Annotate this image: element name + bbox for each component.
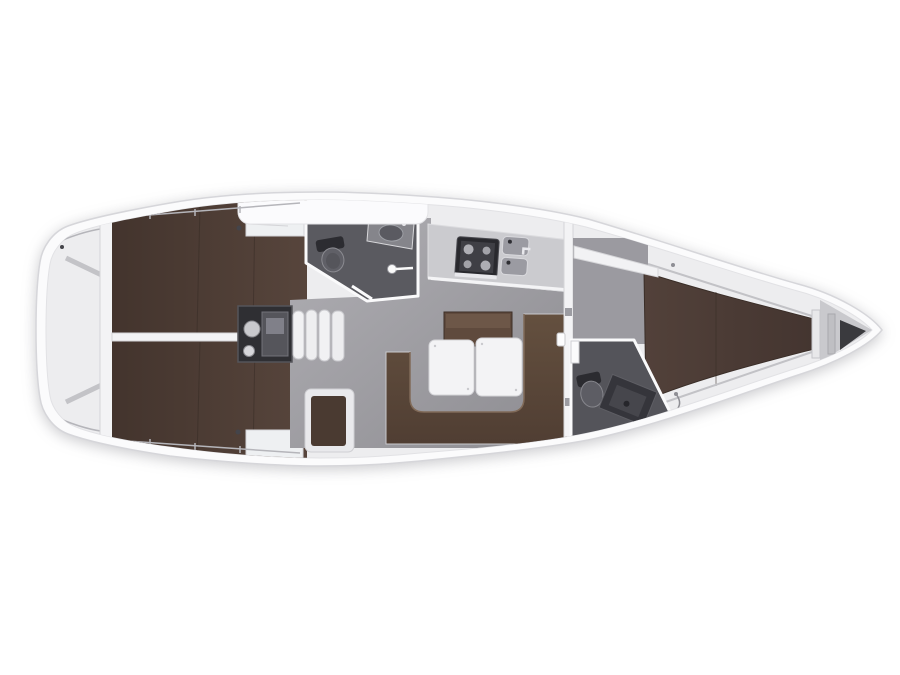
- forward-head-door: [571, 341, 579, 363]
- step-4: [332, 311, 344, 361]
- door-hinge-icon: [565, 308, 572, 316]
- cabin-door-handle-icon: [557, 333, 565, 346]
- engine-filter-icon: [244, 346, 255, 357]
- table-screw-icon: [515, 389, 517, 391]
- galley-stove: [455, 237, 500, 280]
- engine-top: [266, 318, 284, 334]
- shower-mixer-icon: [388, 265, 397, 274]
- bow-post: [828, 314, 835, 354]
- table-screw-icon: [481, 343, 483, 345]
- deck-fitting-icon: [237, 226, 242, 231]
- step-2: [306, 310, 317, 360]
- transom-bulkhead: [100, 212, 114, 452]
- companionway-steps: [293, 310, 344, 361]
- table-leaf-left: [429, 340, 474, 395]
- table-screw-icon: [467, 388, 469, 390]
- table-leaf-right: [476, 338, 522, 396]
- floor-plan-svg: [0, 0, 900, 675]
- handrail-end-icon: [671, 263, 675, 267]
- shower-hose-icon: [396, 268, 413, 269]
- nav-seat-cushion: [311, 396, 346, 446]
- engine-compartment: [238, 306, 292, 362]
- deck-fitting-icon: [236, 430, 241, 435]
- step-1: [293, 311, 304, 359]
- yacht-floor-plan: [0, 0, 900, 675]
- nav-seat: [305, 389, 354, 452]
- sink-basin-2: [501, 257, 528, 276]
- engine-pulley-icon: [244, 321, 260, 337]
- sink-basin-1: [502, 236, 529, 256]
- step-3: [319, 310, 330, 361]
- bow-bulkhead: [812, 310, 820, 358]
- stern-fitting-icon: [60, 245, 64, 249]
- table-screw-icon: [434, 345, 436, 347]
- salon-bench-cushion: [446, 314, 510, 328]
